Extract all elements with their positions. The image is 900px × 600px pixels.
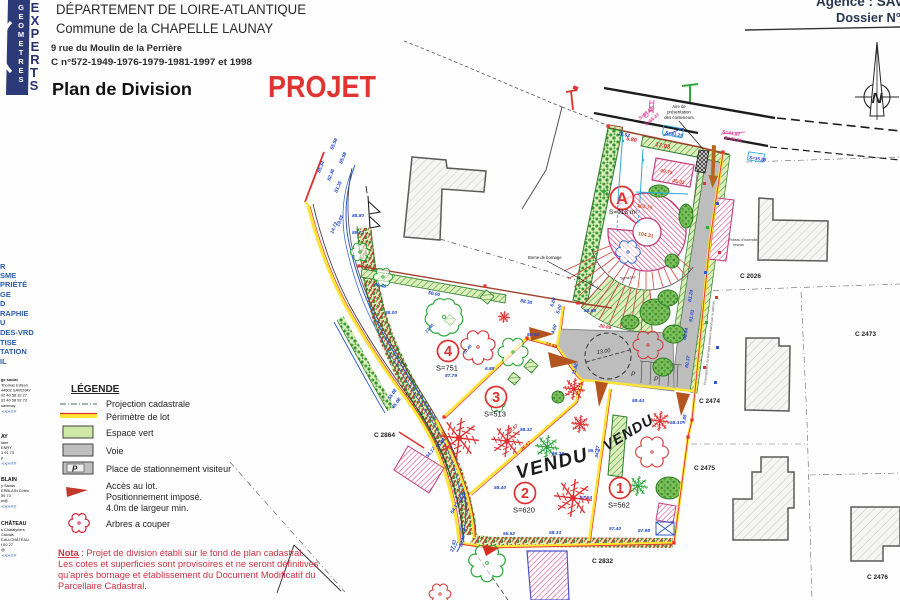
svg-text:in@: in@ [1,498,8,503]
svg-text:Nota : Projet de division étab: Nota : Projet de division établi sur le … [58,548,304,558]
svg-text:S: S [30,78,39,93]
svg-text:E: E [18,39,23,48]
svg-text:CHÂTEAU: CHÂTEAU [1,520,27,527]
svg-text:Aire de: Aire de [672,104,686,109]
svg-text:R: R [18,57,24,66]
svg-text:S: S [18,75,23,84]
svg-text:6.88: 6.88 [485,366,495,372]
svg-text:Voie: Voie [106,446,124,456]
svg-text:58.40: 58.40 [494,485,506,491]
svg-text:E: E [18,12,23,21]
svg-text:N: N [872,90,884,107]
svg-text:Projection cadastrale: Projection cadastrale [106,399,190,409]
svg-text:C 2026: C 2026 [740,273,761,280]
svg-text:PRIÉTÉ: PRIÉTÉ [0,280,27,289]
svg-text:PROJET: PROJET [268,69,376,104]
svg-text:Arbres a couper: Arbres a couper [106,519,170,529]
svg-text:IL: IL [0,357,7,366]
svg-text:E: E [18,66,23,75]
svg-text:Positionnement imposé.: Positionnement imposé. [106,492,202,502]
svg-text:C n°572-1949-1976-1979-1981-19: C n°572-1949-1976-1979-1981-1997 et 1998 [51,57,252,68]
svg-text:savenay: savenay [1,403,16,408]
svg-text:57.98: 57.98 [638,528,650,534]
svg-text:M: M [18,30,24,39]
svg-text:Espace vert: Espace vert [106,428,154,438]
svg-text:G: G [18,3,24,12]
svg-text:GE: GE [0,290,11,299]
svg-text:TATION: TATION [0,347,27,356]
svg-text:S=918 m²: S=918 m² [609,209,638,216]
svg-text:R: R [0,262,6,271]
svg-text:88.80: 88.80 [352,213,364,219]
svg-text:3: 3 [492,390,500,406]
svg-text:Commune de la CHAPELLE LAUNAY: Commune de la CHAPELLE LAUNAY [56,21,273,36]
svg-text:58.32: 58.32 [520,427,532,433]
svg-text:réseau: réseau [733,243,744,247]
svg-text:C 2473: C 2473 [855,331,876,338]
svg-text:Poteau d'incendie: Poteau d'incendie [729,238,757,242]
svg-text:Place de stationnement visiteu: Place de stationnement visiteur [106,464,231,474]
svg-text:S=562: S=562 [608,501,630,510]
svg-text:y: y [1,455,3,460]
svg-text:P: P [631,371,636,378]
svg-text:RAPHIE: RAPHIE [0,309,28,318]
svg-text:TISE: TISE [0,338,17,347]
svg-text:57.54: 57.54 [580,495,592,501]
svg-text:Accès au lot.: Accès au lot. [106,481,158,491]
svg-text:88.00: 88.00 [385,310,397,316]
svg-text:57.40: 57.40 [609,526,621,532]
svg-text:SME: SME [0,271,16,280]
svg-text:S=751: S=751 [436,364,458,373]
svg-text:58.33: 58.33 [549,530,561,536]
svg-text:Dossier N° : S: Dossier N° : S [836,10,900,25]
svg-text:C 2476: C 2476 [867,574,888,581]
svg-text:qu'après bornage et établissem: qu'après bornage et établissement du Doc… [58,570,316,580]
svg-text:des conteneurs: des conteneurs [664,115,693,120]
svg-text:1: 1 [616,481,624,497]
svg-text:S=513: S=513 [484,410,506,419]
svg-text:T: T [19,48,24,57]
svg-text:P: P [72,465,78,474]
svg-text:55.52: 55.52 [503,531,515,537]
svg-text:Borne de bornage: Borne de bornage [528,255,562,260]
svg-text:4: 4 [444,344,452,360]
svg-text:88.98: 88.98 [527,332,539,338]
svg-text:présentation: présentation [667,110,691,115]
svg-text:58.31: 58.31 [670,420,682,426]
svg-text:O: O [18,21,24,30]
svg-text:C 2832: C 2832 [592,558,613,565]
svg-text:DES-VRD: DES-VRD [0,328,34,337]
svg-text:Parcellaire Cadastral.: Parcellaire Cadastral. [58,581,147,591]
svg-text:C 2864: C 2864 [374,432,395,439]
svg-text:-expert.fr: -expert.fr [1,504,17,509]
svg-text:88.71: 88.71 [352,230,364,236]
svg-text:02 40 58 92 73: 02 40 58 92 73 [1,398,27,403]
svg-text:C 2475: C 2475 [694,465,715,472]
svg-text:@: @ [1,547,5,552]
svg-text:9 rue du Moulin de la Perrière: 9 rue du Moulin de la Perrière [51,43,182,54]
svg-text:DÉPARTEMENT DE LOIRE-ATLANTIQU: DÉPARTEMENT DE LOIRE-ATLANTIQUE [56,2,306,17]
svg-text:-expert.fr: -expert.fr [1,409,17,414]
svg-text:4.0m de largeur min.: 4.0m de largeur min. [106,503,189,513]
svg-text:-expert.fr: -expert.fr [1,461,17,466]
svg-text:Les cotes et superficies sont: Les cotes et superficies sont provisoire… [58,559,319,569]
svg-text:58.44: 58.44 [632,398,644,404]
svg-text:58.98: 58.98 [584,308,596,314]
svg-text:S=620: S=620 [513,506,535,515]
svg-text:P: P [654,376,659,383]
svg-text:ge social: ge social [1,377,18,382]
svg-text:Agence : SAVE: Agence : SAVE [816,0,900,9]
svg-text:Plan de Division: Plan de Division [52,79,192,99]
svg-text:LÉGENDE: LÉGENDE [71,382,120,395]
svg-text:2: 2 [521,486,529,502]
svg-text:D: D [0,299,6,308]
svg-text:Périmètre de lot: Périmètre de lot [106,412,170,422]
svg-text:58.30: 58.30 [552,451,564,457]
svg-text:U: U [0,318,5,327]
svg-text:87.79: 87.79 [445,373,457,379]
svg-text:-expert.fr: -expert.fr [1,553,17,558]
svg-text:C 2474: C 2474 [699,398,720,405]
